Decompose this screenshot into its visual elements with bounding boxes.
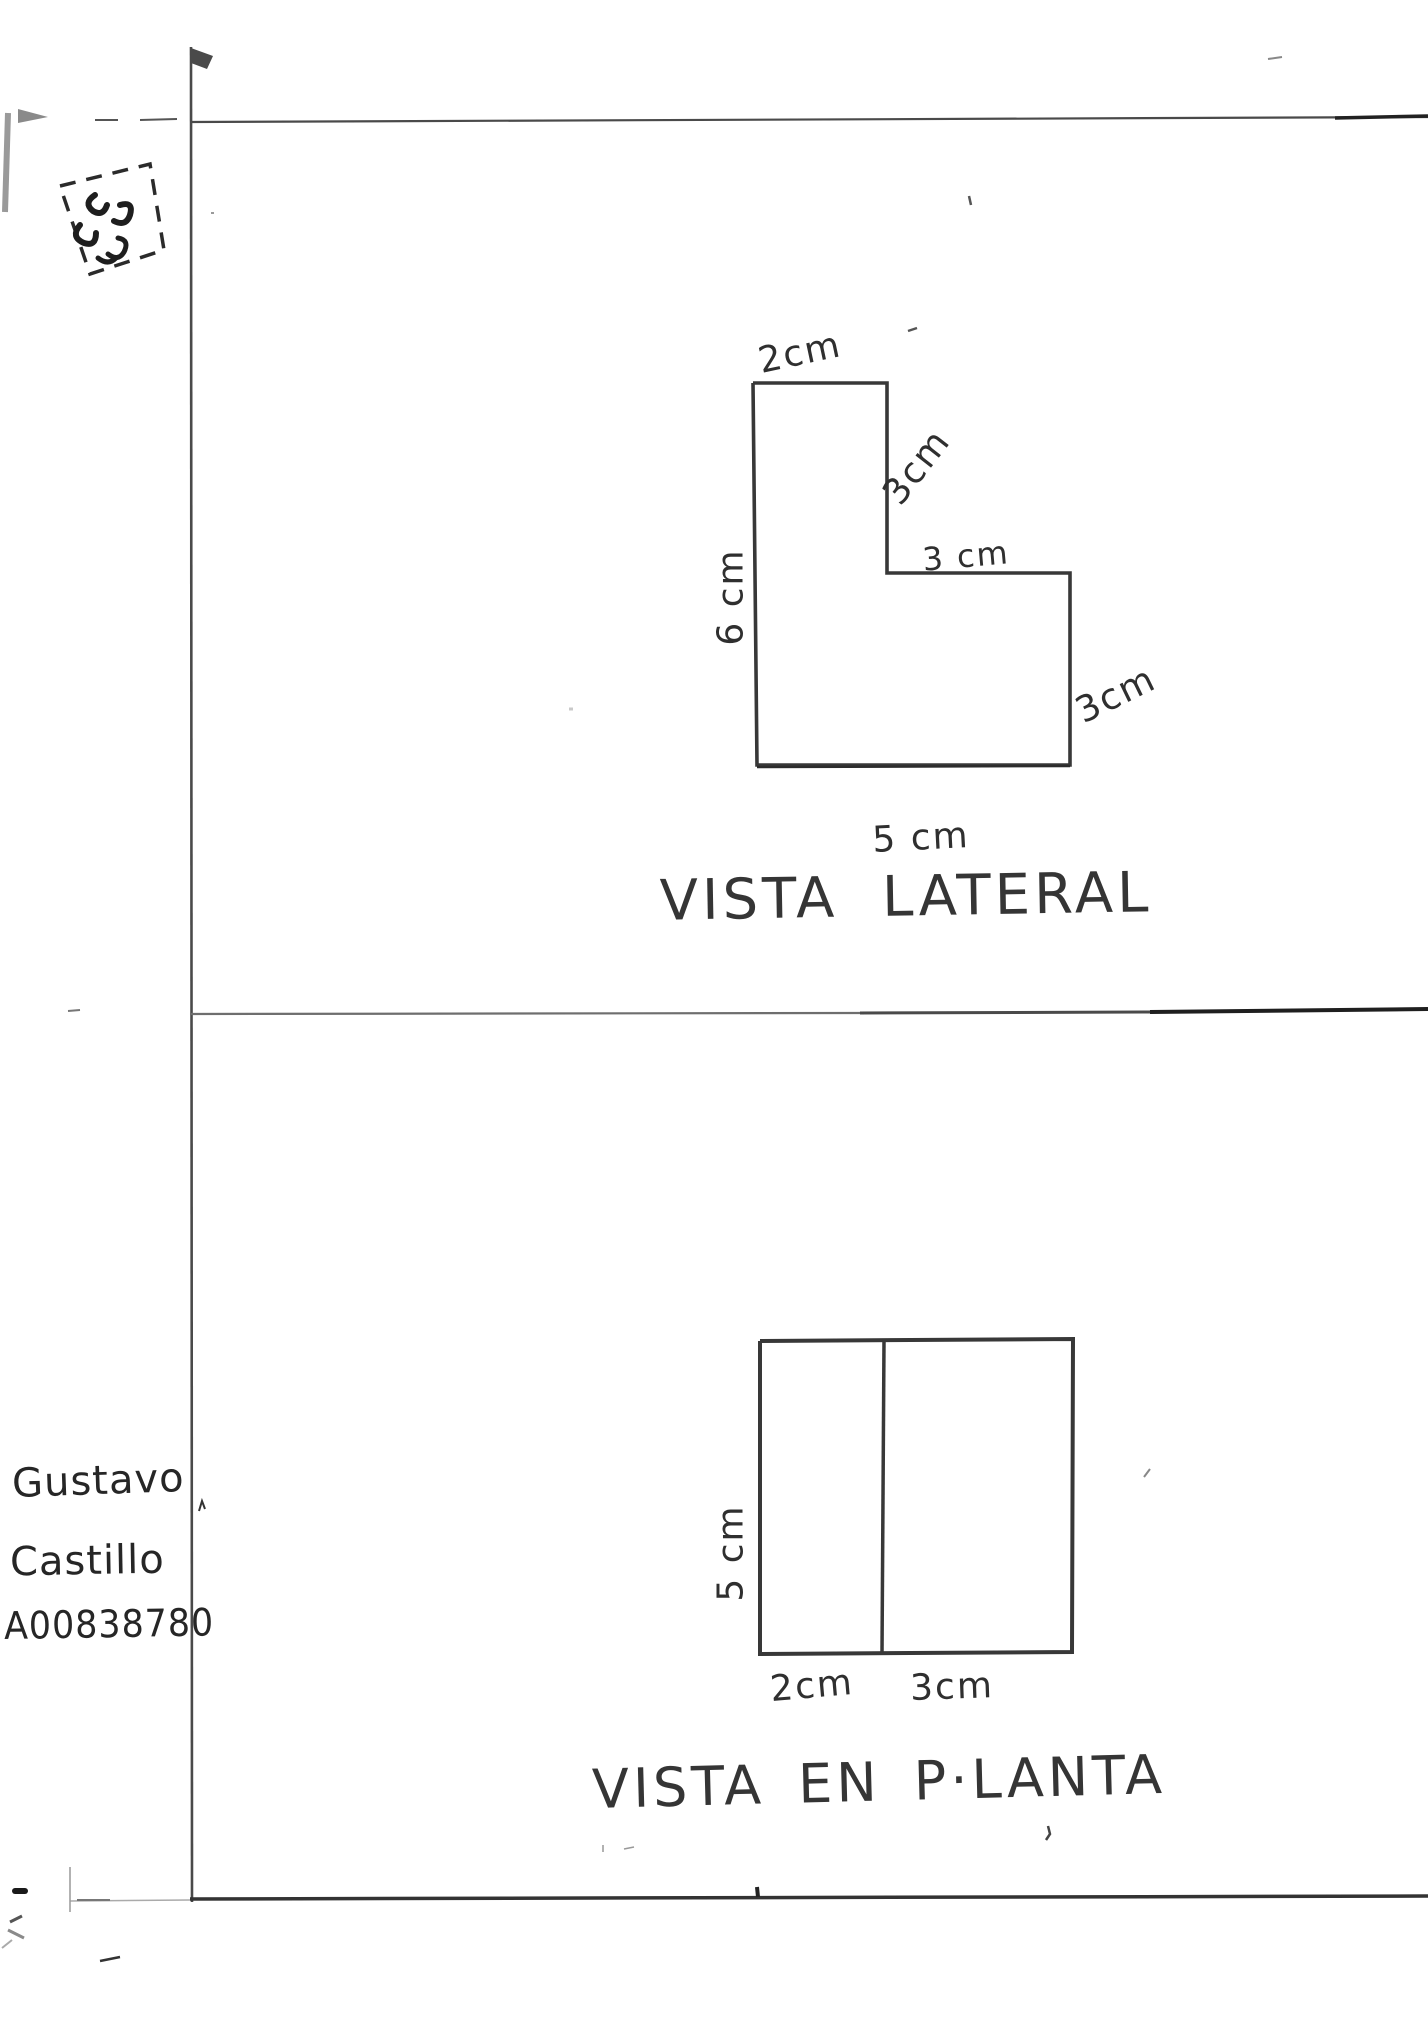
- stamp-doodle: [60, 164, 164, 274]
- section-divider-light: [190, 1013, 860, 1014]
- plan-view-divider: [882, 1341, 884, 1653]
- section-divider-dark: [1150, 1009, 1428, 1012]
- top-border-dash-b: [140, 119, 177, 120]
- margin-top-flag: [191, 48, 213, 69]
- plan-view-outline: [760, 1339, 1073, 1654]
- bottom-left-dash: [100, 1957, 120, 1961]
- gray-streak-top-left: [5, 113, 8, 212]
- gray-arrow-mark: [18, 109, 48, 123]
- bottom-center-tick: [757, 1887, 758, 1897]
- drawing-layer: [0, 0, 1428, 2018]
- bottom-left-scribble-c: [2, 1940, 12, 1948]
- plan-dim-bottom-right: 3cm: [909, 1665, 994, 1709]
- section-divider-predash: [68, 1010, 80, 1011]
- side-dim-bottom: 5 cm: [871, 815, 970, 861]
- speck-top-right-dash: [1268, 57, 1282, 59]
- side-dim-step: 3 cm: [921, 533, 1011, 578]
- bottom-border-line: [190, 1896, 1428, 1899]
- top-border-line: [190, 117, 1428, 122]
- speck-bottom-b: [624, 1847, 634, 1849]
- speck-comma-under-title: [1046, 1826, 1050, 1840]
- bottom-left-scribble-a: [10, 1916, 22, 1922]
- speck-dash-mid: [908, 328, 917, 331]
- bottom-left-scribble-b: [8, 1930, 24, 1938]
- scanned-page: 2cm 3cm 3 cm 3cm 6 cm 5 cm VISTA LATERAL…: [0, 0, 1428, 2018]
- speck-right-mid: [1144, 1469, 1150, 1477]
- signature-last-name: Castillo: [10, 1537, 166, 1586]
- plan-dim-bottom-left: 2cm: [768, 1662, 855, 1710]
- side-dim-left: 6 cm: [711, 548, 752, 645]
- top-border-dark-end: [1335, 116, 1428, 118]
- speck-tick-upper: [969, 196, 971, 205]
- margin-caret-mark: [199, 1501, 205, 1511]
- plan-dim-left: 5 cm: [711, 1504, 752, 1601]
- signature-student-id: A00838780: [4, 1600, 215, 1648]
- section-divider-mid: [860, 1012, 1150, 1013]
- side-view-title: VISTA LATERAL: [659, 860, 1153, 934]
- side-view-bottom-edge: [757, 766, 1070, 767]
- signature-first-name: Gustavo: [11, 1455, 185, 1507]
